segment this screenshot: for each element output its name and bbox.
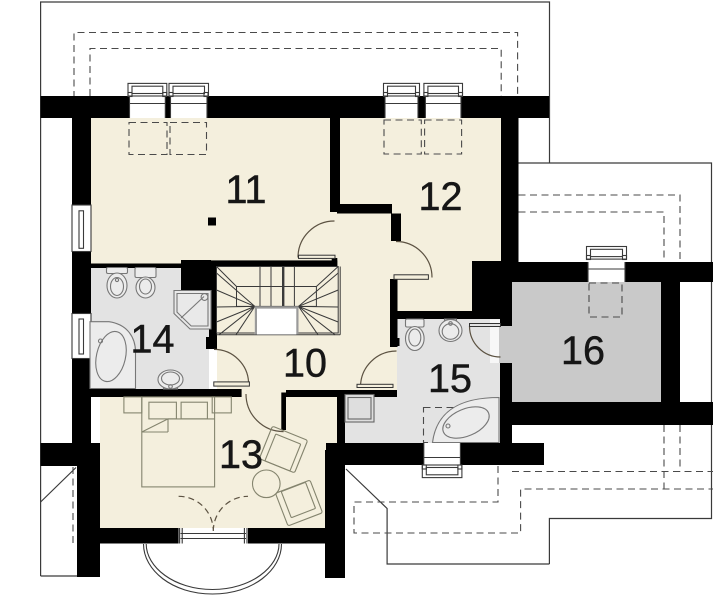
svg-text:11: 11 <box>225 168 266 212</box>
svg-text:12: 12 <box>419 175 463 219</box>
svg-text:13: 13 <box>219 433 263 477</box>
svg-text:14: 14 <box>131 318 175 362</box>
svg-text:10: 10 <box>283 342 327 386</box>
svg-text:15: 15 <box>428 357 472 401</box>
svg-text:16: 16 <box>561 329 605 373</box>
